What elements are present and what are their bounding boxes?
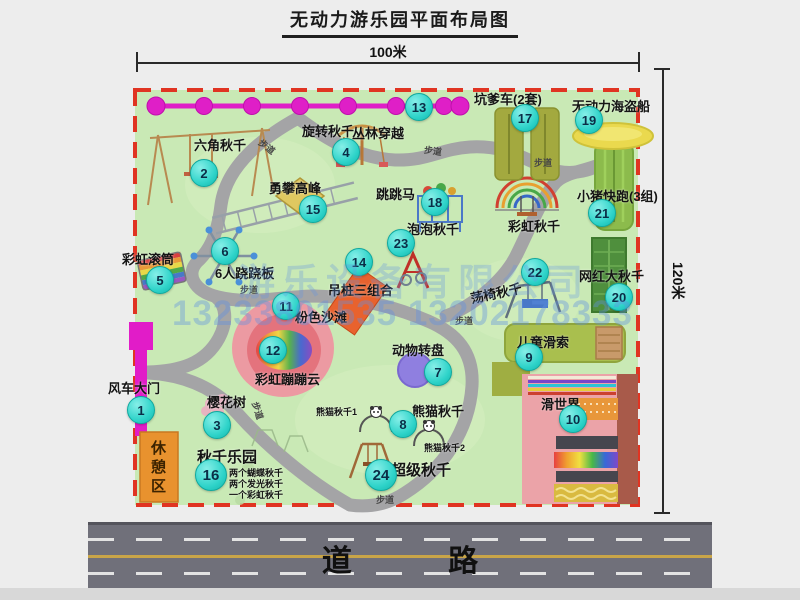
badge-23: 23	[387, 229, 415, 257]
park-map-canvas	[0, 0, 800, 600]
walkway-label-4: 步道	[240, 283, 258, 296]
badge-3: 3	[203, 411, 231, 439]
badge-15: 15	[299, 195, 327, 223]
badge-14: 14	[345, 248, 373, 276]
badge-5: 5	[146, 266, 174, 294]
badge-6: 6	[211, 237, 239, 265]
screenshot-root: 无动力游乐园平面布局图 100米 120米	[0, 0, 800, 600]
road-label: 道 路	[88, 525, 712, 591]
badge-12: 12	[259, 336, 287, 364]
title-bar: 无动力游乐园平面布局图	[0, 6, 800, 38]
badge-24: 24	[365, 459, 397, 491]
label-bubble-swing: 泡泡秋千	[407, 219, 459, 238]
label-jumping-horse: 跳跳马	[376, 184, 415, 203]
badge-7: 7	[424, 358, 452, 386]
badge-4: 4	[332, 138, 360, 166]
badge-9: 9	[515, 343, 543, 371]
label-panda-swing: 熊猫秋千	[412, 401, 464, 420]
page-title: 无动力游乐园平面布局图	[282, 6, 518, 38]
badge-16: 16	[195, 459, 227, 491]
badge-20: 20	[605, 283, 633, 311]
badge-22: 22	[521, 258, 549, 286]
badge-13: 13	[405, 93, 433, 121]
label-seesaw: 6人跷跷板	[215, 263, 274, 282]
dimension-right-label: 120米	[668, 262, 688, 299]
badge-1: 1	[127, 396, 155, 424]
walkway-label-7: 步道	[455, 314, 473, 327]
dimension-right-line	[662, 68, 664, 514]
rest-area-label: 休憩区	[147, 440, 168, 497]
label-hex-swing: 六角秋千	[194, 135, 246, 154]
label-rainbow-swing: 彩虹秋千	[508, 216, 560, 235]
sidewalk-strip	[0, 588, 800, 600]
label-windmill-gate: 风车大门	[108, 378, 160, 397]
badge-2: 2	[190, 159, 218, 187]
dimension-top-tick-right	[638, 52, 640, 72]
label-hanging-pile-combo: 吊桩三组合	[328, 280, 393, 299]
label-panda-swing-2: 熊猫秋千2	[424, 441, 465, 454]
label-jungle-crossing: 丛林穿越	[352, 123, 404, 142]
badge-21: 21	[588, 199, 616, 227]
label-swing-park-note-3: 一个彩虹秋千	[229, 488, 283, 501]
badge-11: 11	[272, 292, 300, 320]
label-super-swing: 超级秋千	[391, 459, 451, 480]
badge-18: 18	[421, 188, 449, 216]
label-rainbow-bounce-cloud: 彩虹蹦蹦云	[255, 369, 320, 388]
label-panda-swing-1: 熊猫秋千1	[316, 405, 357, 418]
badge-10: 10	[559, 405, 587, 433]
label-pink-beach: 粉色沙滩	[295, 307, 347, 326]
walkway-label-3: 步道	[534, 156, 552, 169]
label-piggy-run: 小猪快跑(3组)	[577, 186, 658, 205]
walkway-label-2: 步道	[423, 143, 443, 158]
dimension-right-tick-top	[654, 68, 670, 70]
dimension-top-label: 100米	[136, 42, 640, 62]
badge-19: 19	[575, 106, 603, 134]
dimension-top-tick-left	[136, 52, 138, 72]
badge-8: 8	[389, 410, 417, 438]
label-big-swing: 网红大秋千	[579, 266, 644, 285]
badge-17: 17	[511, 104, 539, 132]
dimension-top-line	[136, 62, 640, 64]
walkway-label-6: 步道	[376, 493, 394, 506]
label-cherry-tree: 樱花树	[207, 392, 246, 411]
label-rainbow-roller: 彩虹滚筒	[122, 249, 174, 268]
dimension-right-tick-bottom	[654, 512, 670, 514]
label-animal-carousel: 动物转盘	[392, 340, 444, 359]
road: 道 路	[88, 522, 712, 594]
